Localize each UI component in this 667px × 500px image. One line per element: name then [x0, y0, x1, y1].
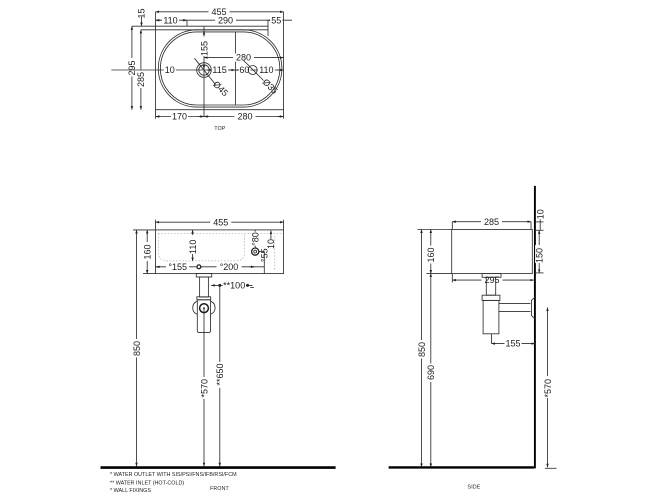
svg-text:TOP: TOP — [214, 126, 226, 132]
svg-text:170: 170 — [172, 112, 187, 122]
svg-text:°80: °80 — [251, 232, 261, 246]
svg-text:55: 55 — [271, 15, 281, 25]
svg-text:160: 160 — [143, 244, 153, 259]
svg-text:10: 10 — [536, 209, 546, 219]
svg-text:** WATER INLET (HOT-COLD): ** WATER INLET (HOT-COLD) — [110, 480, 184, 486]
svg-text:15: 15 — [137, 8, 147, 18]
svg-text:150: 150 — [535, 248, 545, 263]
svg-text:280: 280 — [237, 112, 252, 122]
svg-text:*570: *570 — [199, 379, 209, 398]
svg-text:155: 155 — [505, 339, 520, 349]
svg-text:10: 10 — [266, 239, 276, 249]
svg-text:110: 110 — [163, 15, 177, 25]
svg-text:110: 110 — [188, 240, 198, 254]
svg-text:* WALL FIXINGS: * WALL FIXINGS — [110, 488, 151, 494]
svg-text:10: 10 — [165, 65, 175, 75]
svg-text:850: 850 — [417, 342, 427, 357]
svg-text:°55: °55 — [260, 248, 270, 262]
svg-text:**650: **650 — [215, 363, 225, 385]
svg-text:295: 295 — [484, 275, 499, 285]
svg-text:*570: *570 — [543, 379, 553, 398]
svg-text:455: 455 — [213, 217, 228, 227]
svg-text:285: 285 — [484, 217, 499, 227]
svg-text:115: 115 — [212, 65, 226, 75]
svg-text:* WATER OUTLET WITH SIS/PSI/F: * WATER OUTLET WITH SIS/PSI/FNS/IFB/RSI/… — [110, 472, 237, 478]
svg-text:FRONT: FRONT — [210, 486, 229, 492]
svg-text:110: 110 — [259, 65, 273, 75]
svg-text:160: 160 — [426, 247, 436, 262]
svg-text:850: 850 — [132, 341, 142, 356]
svg-text:290: 290 — [218, 15, 233, 25]
svg-text:SIDE: SIDE — [468, 485, 481, 491]
svg-text:**100: **100 — [223, 281, 245, 291]
svg-text:285: 285 — [136, 72, 146, 87]
svg-text:280: 280 — [236, 53, 251, 63]
svg-text:°155: °155 — [168, 262, 187, 272]
svg-text:155: 155 — [199, 41, 209, 56]
svg-text:°200: °200 — [220, 262, 239, 272]
svg-text:690: 690 — [426, 365, 436, 380]
